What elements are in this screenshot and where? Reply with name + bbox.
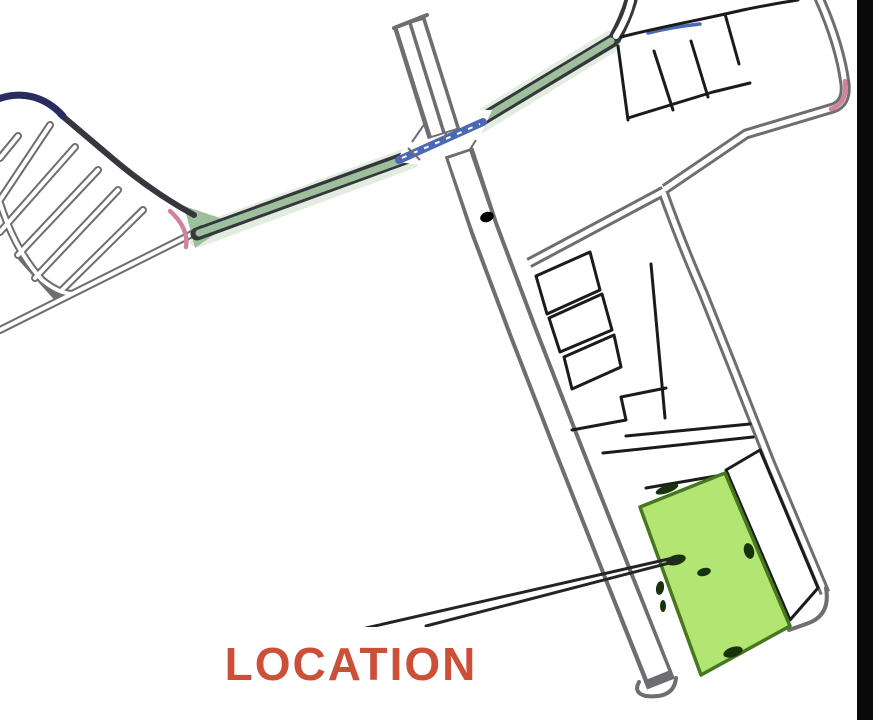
site-location-map: LOCATION: [0, 0, 873, 720]
location-callout: LOCATION: [206, 627, 497, 702]
right-frame-strip: [857, 0, 873, 720]
location-callout-label: LOCATION: [225, 638, 478, 690]
mark-left-edge-2: [660, 600, 666, 612]
map-canvas: LOCATION: [0, 0, 873, 720]
